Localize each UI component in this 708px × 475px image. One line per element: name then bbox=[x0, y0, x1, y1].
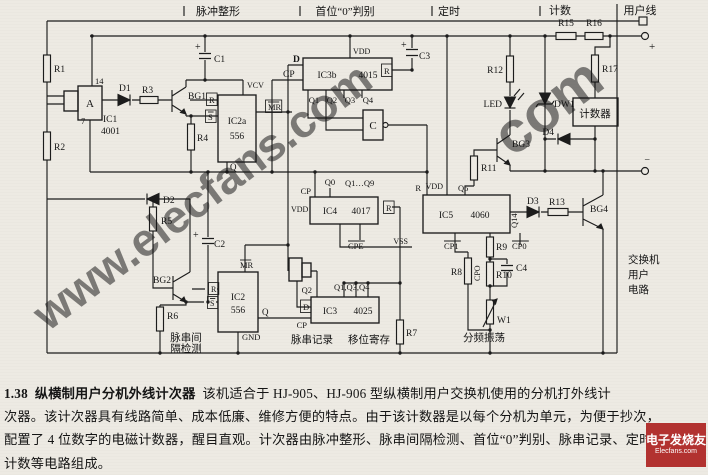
label-D3: D3 bbox=[527, 197, 539, 207]
watermark-layer: www.elecfans.com com bbox=[22, 45, 615, 341]
resistor-R12 bbox=[507, 56, 514, 82]
resistor-R15 bbox=[556, 33, 576, 40]
elecfans-logo-chinese: 电子发烧友 bbox=[646, 434, 706, 447]
label-IC4: IC4 bbox=[323, 207, 338, 217]
elecfans-logo-latin: Elecfans.com bbox=[646, 448, 706, 456]
caption-line3: 配置了 4 位数字的电磁计数器，醒目直观。计次器由脉冲整形、脉串间隔检测、首位“… bbox=[4, 432, 666, 447]
label-IC5-Q5: Q5 bbox=[458, 183, 468, 193]
label-IC3-Q2: Q2 bbox=[302, 285, 312, 295]
label-R9: R9 bbox=[496, 243, 507, 253]
label-R1: R1 bbox=[54, 65, 65, 75]
resistor-R6 bbox=[157, 307, 164, 331]
resistor-R13 bbox=[548, 209, 568, 216]
label-IC3b-CP: CP bbox=[283, 70, 295, 80]
diode-D3 bbox=[527, 207, 539, 218]
caption-line2: 次器。该计次器具有线路简单、成本低廉、维修方便的特点。由于该计数器是以每个分机为… bbox=[4, 409, 660, 424]
resistor-R10 bbox=[487, 262, 494, 286]
label-D1: D1 bbox=[119, 84, 131, 94]
resistor-R8 bbox=[465, 258, 472, 284]
label-IC2-R: R bbox=[211, 285, 217, 294]
terminal-plus bbox=[642, 33, 649, 40]
resistor-R9 bbox=[487, 237, 494, 257]
terminals bbox=[639, 17, 649, 175]
resistor-R7 bbox=[397, 320, 404, 344]
label-pin7: 7 bbox=[81, 116, 85, 126]
label-R3: R3 bbox=[142, 86, 153, 96]
label-R17: R17 bbox=[602, 65, 618, 75]
label-lbl-exchange-3: 电路 bbox=[628, 283, 649, 296]
label-gateA: A bbox=[86, 98, 94, 110]
label-IC4-R: R bbox=[386, 203, 392, 213]
label-IC5-part: 4060 bbox=[471, 211, 490, 221]
label-hdr-pulse-shaping: 脉冲整形 bbox=[196, 4, 240, 18]
label-IC3b-VDD: VDD bbox=[353, 47, 371, 56]
label-VCV: VCV bbox=[247, 81, 264, 90]
resistor-R1 bbox=[44, 55, 51, 82]
label-C3-plus: + bbox=[401, 40, 407, 51]
label-R11: R11 bbox=[481, 164, 497, 174]
label-R12: R12 bbox=[487, 66, 503, 76]
label-IC5-CP1: CP1 bbox=[444, 241, 459, 251]
label-C2: C2 bbox=[214, 240, 225, 250]
label-lbl-shift-register: 移位寄存 bbox=[348, 333, 390, 346]
label-R13: R13 bbox=[549, 198, 565, 208]
label-lbl-exchange-2: 用户 bbox=[628, 268, 649, 281]
label-hdr-first-zero: 首位“0”判别 bbox=[315, 4, 374, 18]
label-IC2-MR: MR bbox=[240, 260, 254, 270]
label-W1: W1 bbox=[497, 316, 511, 326]
label-IC3-D: D bbox=[303, 302, 309, 312]
label-IC1-part: 4001 bbox=[101, 127, 120, 137]
label-IC2a-S: S bbox=[208, 112, 213, 122]
potentiometer-W1 bbox=[483, 299, 497, 327]
label-BG4: BG4 bbox=[590, 205, 608, 215]
label-IC4-CP: CP bbox=[301, 186, 312, 196]
capacitor-C2 bbox=[202, 239, 214, 244]
capacitor-C3 bbox=[406, 50, 418, 56]
caption-line1: 该机适合于 HJ-905、HJ-906 型纵横制用户交换机使用的分机打外线计 bbox=[203, 386, 611, 401]
label-R10: R10 bbox=[496, 271, 512, 281]
label-pin14: 14 bbox=[95, 76, 104, 86]
transistor-BG2 bbox=[173, 272, 190, 302]
resistor-R11 bbox=[471, 156, 478, 180]
caption-line4: 计数等电路组成。 bbox=[4, 456, 111, 471]
diode-D1 bbox=[118, 95, 130, 106]
label-C4: C4 bbox=[516, 264, 527, 274]
terminal-minus bbox=[642, 168, 649, 175]
label-R15: R15 bbox=[558, 19, 574, 29]
label-lbl-pulse-record: 脉串记录 bbox=[291, 333, 333, 346]
label-IC2-S: S bbox=[210, 299, 214, 308]
elecfans-logo: 电子发烧友 Elecfans.com bbox=[646, 423, 706, 467]
label-IC4-VSS: VSS bbox=[393, 237, 408, 246]
label-hdr-timing: 定时 bbox=[438, 4, 460, 18]
resistor-R2 bbox=[44, 132, 51, 160]
label-R2: R2 bbox=[54, 143, 65, 153]
label-IC5-CP0: CP0 bbox=[512, 241, 527, 251]
capacitor-C4 bbox=[501, 266, 513, 271]
label-IC4-Q0: Q0 bbox=[325, 177, 335, 187]
label-IC5-Q14: Q14 bbox=[509, 213, 519, 228]
label-GND: GND bbox=[242, 332, 260, 342]
label-lbl-detect-2: 隔检测 bbox=[170, 342, 202, 355]
label-IC4-part: 4017 bbox=[352, 207, 371, 217]
gate-C-inverter-bubble bbox=[383, 123, 388, 128]
label-lbl-exchange-1: 交换机 bbox=[628, 253, 660, 266]
gate-A-input-stub bbox=[64, 91, 78, 111]
label-IC5-VDD: VDD bbox=[426, 182, 444, 191]
label-R6: R6 bbox=[167, 312, 178, 322]
label-IC5: IC5 bbox=[439, 211, 454, 221]
ic5-4060-body bbox=[423, 195, 510, 233]
label-IC2: IC2 bbox=[231, 293, 246, 303]
terminal-line-a bbox=[639, 17, 647, 25]
caption-text: 1.38 纵横制用户分机外线计次器 该机适合于 HJ-905、HJ-906 型纵… bbox=[0, 377, 708, 475]
label-CPO-vert: CPO bbox=[473, 265, 482, 281]
label-IC3b-R: R bbox=[384, 66, 390, 76]
buffer-gate-body bbox=[289, 258, 302, 281]
label-IC4-VDD: VDD bbox=[291, 205, 309, 214]
label-IC3-CP: CP bbox=[297, 320, 308, 330]
label-BG1: BG1 bbox=[188, 92, 206, 102]
label-C1-plus: + bbox=[195, 42, 201, 53]
label-IC3-Q134: Q1,Q3,Q4 bbox=[334, 282, 370, 292]
label-lbl-detect-1: 脉串间 bbox=[170, 331, 202, 344]
label-R16: R16 bbox=[586, 19, 602, 29]
resistor-R16 bbox=[585, 33, 603, 40]
label-IC4-CPE: CPE bbox=[348, 241, 364, 251]
scanned-book-page: 脉冲整形首位“0”判别定时计数用户线R1R2147IC14001AD1R3BG1… bbox=[0, 0, 708, 475]
label-BG2: BG2 bbox=[153, 276, 171, 286]
label-IC2a: IC2a bbox=[228, 117, 247, 127]
label-IC4-Q1-Q9: Q1…Q9 bbox=[345, 178, 374, 188]
label-hdr-counting: 计数 bbox=[549, 4, 571, 17]
transistor-BG4 bbox=[583, 171, 603, 353]
label-IC3-part: 4025 bbox=[354, 307, 373, 317]
label-IC5-R: R bbox=[415, 183, 421, 193]
label-term-minus: − bbox=[644, 155, 650, 166]
label-IC3b-D: D bbox=[293, 55, 300, 65]
label-lbl-divider-osc: 分频振荡 bbox=[463, 331, 505, 344]
label-R4: R4 bbox=[197, 134, 208, 144]
caption-title: 纵横制用户分机外线计次器 bbox=[35, 386, 196, 401]
label-IC1: IC1 bbox=[103, 115, 118, 125]
label-IC2a-R: R bbox=[209, 95, 215, 105]
circuit-schematic: 脉冲整形首位“0”判别定时计数用户线R1R2147IC14001AD1R3BG1… bbox=[0, 0, 708, 376]
capacitor-C1 bbox=[199, 54, 211, 59]
label-term-plus: + bbox=[649, 41, 655, 53]
resistor-R3 bbox=[140, 97, 158, 104]
label-R7: R7 bbox=[406, 329, 417, 339]
buffer-gate-output bbox=[302, 263, 311, 277]
label-IC2-part: 556 bbox=[231, 306, 246, 316]
label-R8: R8 bbox=[451, 268, 462, 278]
label-gateC: C bbox=[369, 120, 376, 132]
label-C3: C3 bbox=[419, 52, 430, 62]
label-IC3: IC3 bbox=[323, 307, 338, 317]
caption-number: 1.38 bbox=[4, 386, 28, 401]
label-IC2-Q: Q bbox=[262, 307, 269, 317]
transistor-BG1 bbox=[172, 80, 186, 116]
label-hdr-subscriber-line: 用户线 bbox=[624, 3, 657, 17]
label-C1: C1 bbox=[214, 55, 225, 65]
resistor-R4 bbox=[188, 124, 195, 150]
